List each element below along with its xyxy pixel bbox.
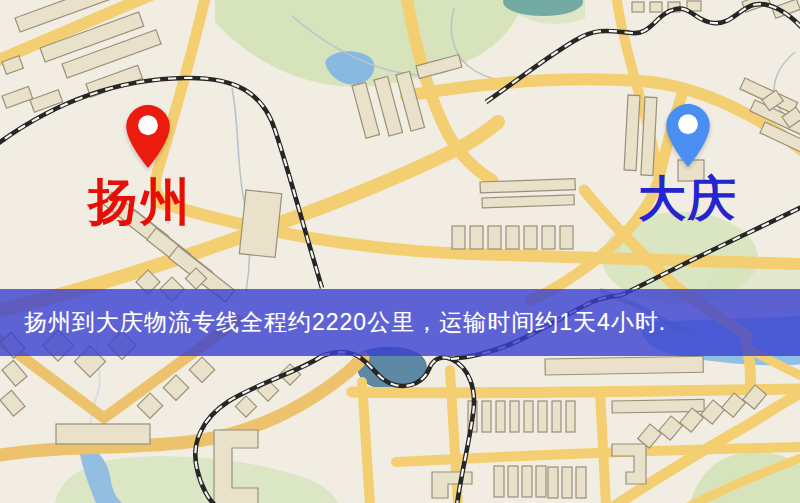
map-screenshot: 扬州 大庆 扬州到大庆物流专线全程约2220公里，运输时间约1天4小时. — [0, 0, 800, 503]
map-background — [0, 0, 800, 503]
origin-pin-shape — [126, 105, 170, 168]
origin-pin-hole — [138, 115, 158, 135]
destination-label: 大庆 — [638, 175, 738, 223]
origin-pin-icon — [124, 101, 172, 172]
destination-pin-shape — [666, 104, 710, 167]
route-info-text: 扬州到大庆物流专线全程约2220公里，运输时间约1天4小时. — [0, 289, 800, 356]
origin-label: 扬州 — [88, 177, 192, 227]
destination-pin-icon — [664, 100, 712, 171]
route-info-banner: 扬州到大庆物流专线全程约2220公里，运输时间约1天4小时. — [0, 289, 800, 356]
destination-pin-hole — [678, 114, 698, 134]
